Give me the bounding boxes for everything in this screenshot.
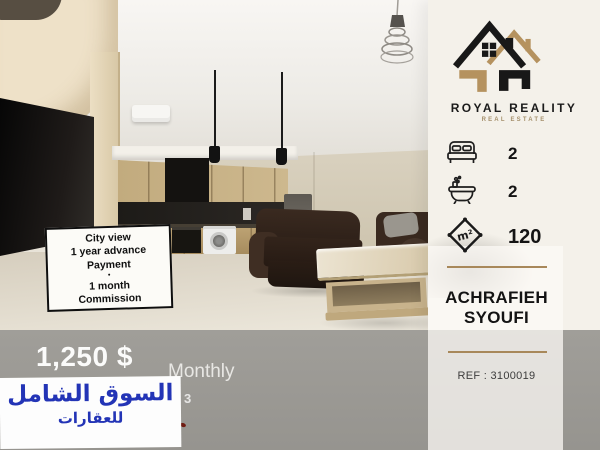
location-line2: SYOUFI	[430, 308, 563, 328]
bed-icon	[446, 138, 486, 169]
arabic-watermark: السوق الشامل للعقارات	[0, 376, 181, 449]
bedrooms-count: 2	[508, 144, 517, 164]
pendant-light	[276, 148, 287, 165]
brand-name: ROYAL REALITY	[430, 101, 598, 115]
pendant-cord	[281, 72, 283, 150]
bathrooms-count: 2	[508, 182, 517, 202]
coffee-table-glass-top	[316, 243, 430, 281]
note-line: Commission	[49, 292, 171, 309]
gray-throw-blanket	[383, 212, 420, 239]
pendant-light	[209, 146, 220, 163]
reference-number: REF : 3100019	[430, 370, 563, 382]
wire-pendant-lamp	[376, 0, 420, 68]
reference-card	[428, 246, 563, 450]
feature-bedrooms: 2	[446, 138, 566, 169]
pendant-cord	[214, 70, 216, 148]
location-line1: ACHRAFIEH	[430, 288, 563, 308]
washer-door	[210, 232, 228, 250]
gold-divider	[447, 266, 547, 268]
obscured-text-fragment: 3	[184, 391, 191, 406]
washing-machine	[203, 226, 236, 254]
bath-icon	[446, 174, 486, 209]
gold-divider	[448, 351, 547, 353]
watermark-line1: السوق الشامل	[0, 379, 181, 410]
feature-list: 2 2 m²	[446, 138, 566, 259]
ac-unit	[132, 105, 170, 122]
photo-note-box: City view 1 year advance Payment • 1 mon…	[45, 224, 174, 312]
location-title: ACHRAFIEH SYOUFI	[430, 288, 563, 327]
feature-area: m² 120	[446, 216, 566, 259]
svg-text:m²: m²	[456, 227, 475, 244]
area-value: 120	[508, 226, 541, 249]
oven	[172, 227, 201, 253]
price-label: 1,250 $	[36, 341, 133, 373]
watermark-line2: للعقارات	[0, 408, 181, 429]
area-icon: m²	[446, 216, 486, 259]
royal-reality-logo	[447, 11, 551, 99]
kettle	[243, 208, 251, 220]
feature-bathrooms: 2	[446, 174, 566, 209]
real-estate-listing-image: City view 1 year advance Payment • 1 mon…	[0, 0, 600, 450]
coffee-table	[316, 243, 430, 327]
brand-tagline: REAL ESTATE	[430, 117, 598, 123]
